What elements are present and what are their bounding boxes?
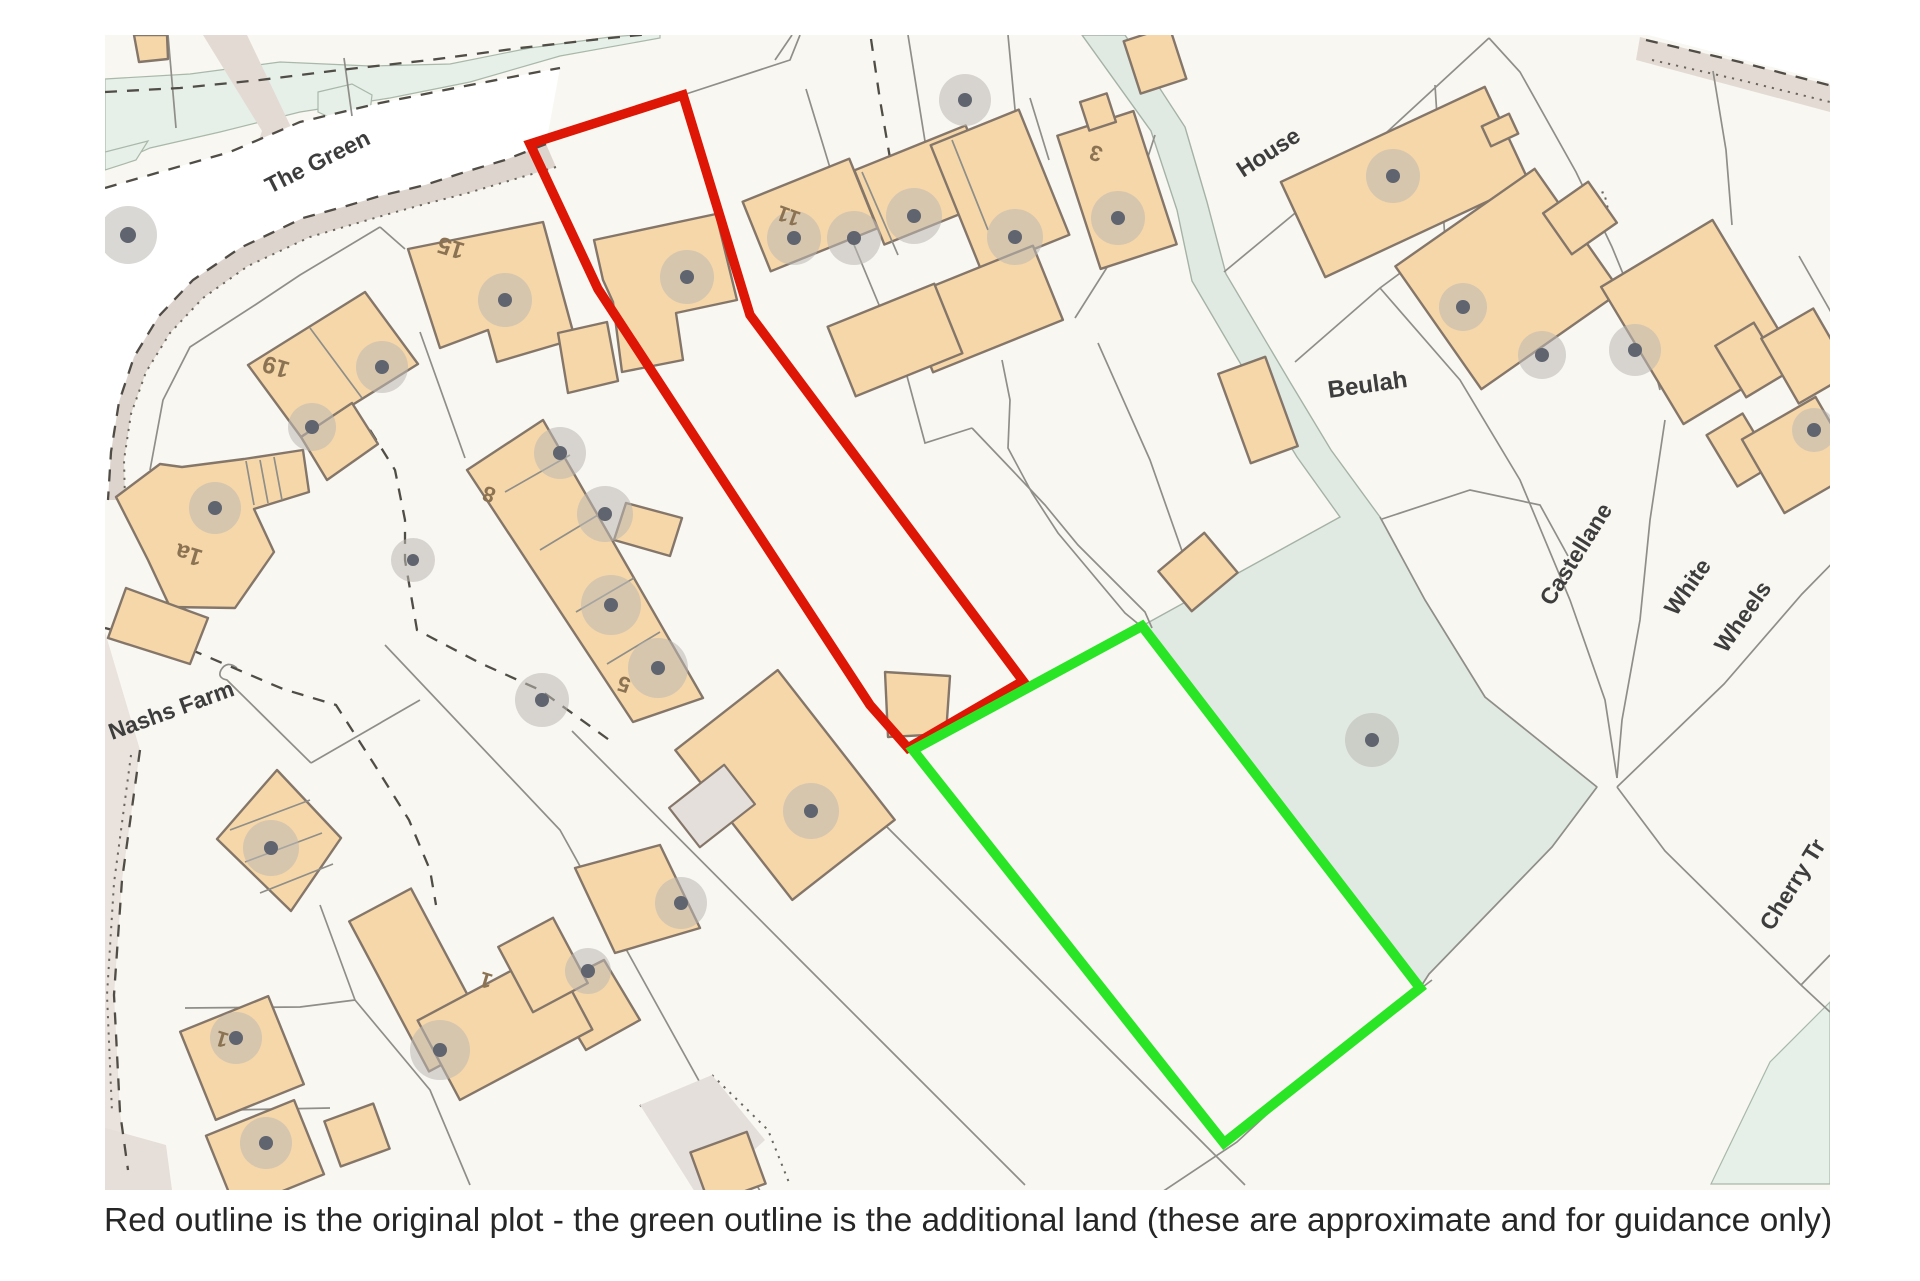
svg-text:Red outline is the original pl: Red outline is the original plot - the g…: [104, 1202, 1832, 1239]
